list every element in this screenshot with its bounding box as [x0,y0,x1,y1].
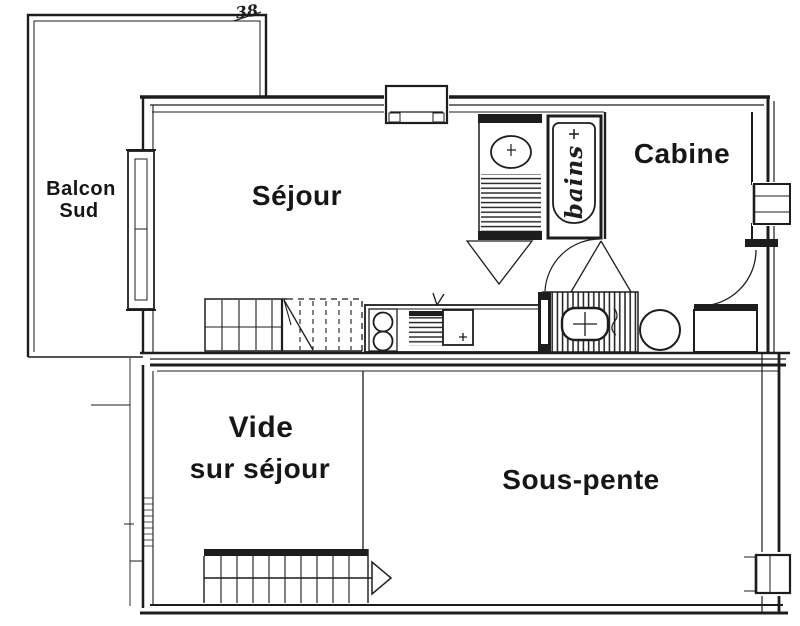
stairs-upper [205,299,362,351]
drainboard-hatch [409,310,443,346]
cabin-label: Cabine [634,138,730,169]
attic-label: Sous-pente [502,464,659,495]
balcony-label-line2: Sud [59,200,98,222]
living-room-label: Séjour [252,180,342,211]
kitchen-counter [365,293,540,352]
cabin-inner-east-wall [745,112,778,247]
wc-door [545,239,631,292]
annotation-38: 38 [232,0,262,23]
void-label-line2: sur séjour [190,453,330,484]
bathroom-bottom-wall [478,231,542,240]
cabin-east-window [752,182,793,226]
stove-icon [369,309,397,351]
shower-hatch [481,174,541,232]
water-heater-icon [640,310,680,350]
dimension-marks [91,358,143,606]
bathtub-block: bains [545,113,603,240]
door-swing-arc [700,250,756,306]
faucet-icon [433,293,444,305]
cabin-closet [694,304,758,352]
upper-exterior-walls [140,97,790,359]
balcony-door-window [126,149,156,311]
stairs-lower [204,549,391,603]
bathroom-door [467,241,532,284]
lower-east-window [744,552,794,596]
door-swing-arc [545,239,600,291]
cabin-door [700,250,756,306]
wc-room [538,292,638,352]
stairs-direction-arrow [204,562,391,594]
floor-plan-page: 38 Balcon Sud Séjour [0,0,800,626]
balcony-label-line1: Balcon [46,178,116,200]
void-label-line1: Vide [229,411,294,444]
bathroom-block [478,113,548,240]
floor-plan-drawing: 38 Balcon Sud Séjour [0,0,800,626]
lower-west-wall-ticks [144,498,153,546]
bath-label: bains [561,145,588,219]
top-wall-window [384,84,449,125]
bathroom-top-wall [478,114,542,123]
balcony-label: Balcon Sud [46,178,116,222]
void-label: Vide sur séjour [190,411,330,484]
